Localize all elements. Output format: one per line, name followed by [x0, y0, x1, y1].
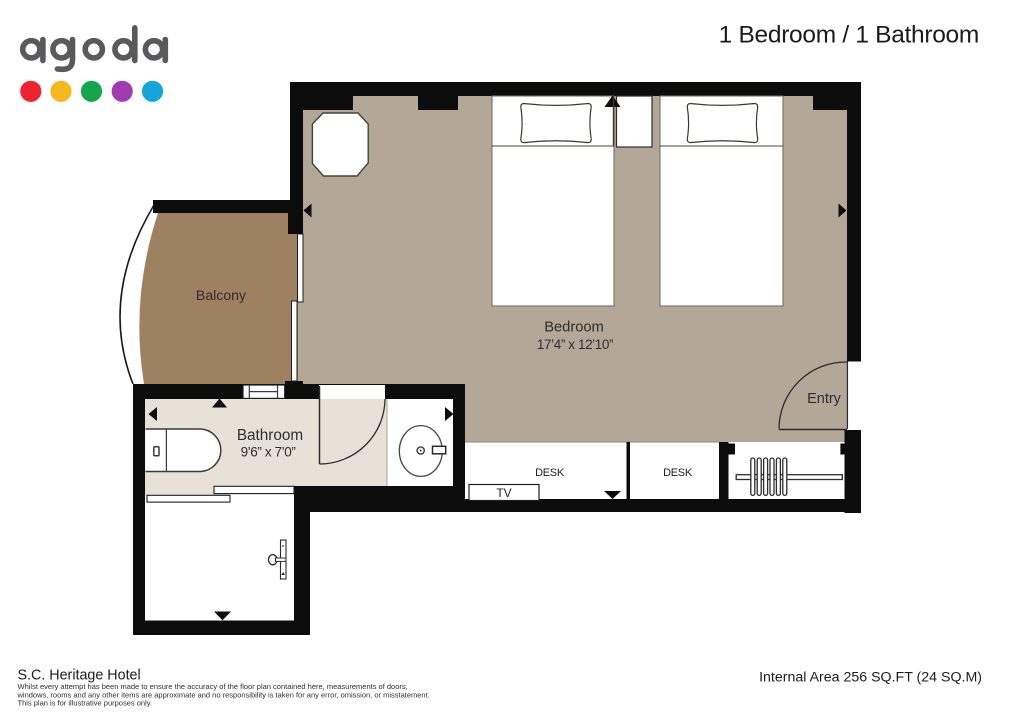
svg-text:DESK: DESK	[535, 467, 565, 479]
svg-text:DESK: DESK	[663, 467, 693, 479]
svg-text:9’6” x 7’0”: 9’6” x 7’0”	[241, 445, 296, 460]
svg-text:TV: TV	[496, 486, 511, 500]
svg-text:Bedroom: Bedroom	[544, 320, 604, 336]
svg-text:Balcony: Balcony	[196, 287, 247, 303]
svg-text:This plan is for illustrative: This plan is for illustrative purposes o…	[18, 699, 153, 708]
svg-text:Internal Area 256 SQ.FT (24 SQ: Internal Area 256 SQ.FT (24 SQ.M)	[759, 670, 982, 686]
svg-text:1 Bedroom / 1 Bathroom: 1 Bedroom / 1 Bathroom	[719, 22, 979, 49]
svg-text:Entry: Entry	[807, 391, 842, 407]
svg-text:Bathroom: Bathroom	[237, 427, 303, 444]
svg-text:17’4” x 12’10”: 17’4” x 12’10”	[537, 337, 613, 352]
